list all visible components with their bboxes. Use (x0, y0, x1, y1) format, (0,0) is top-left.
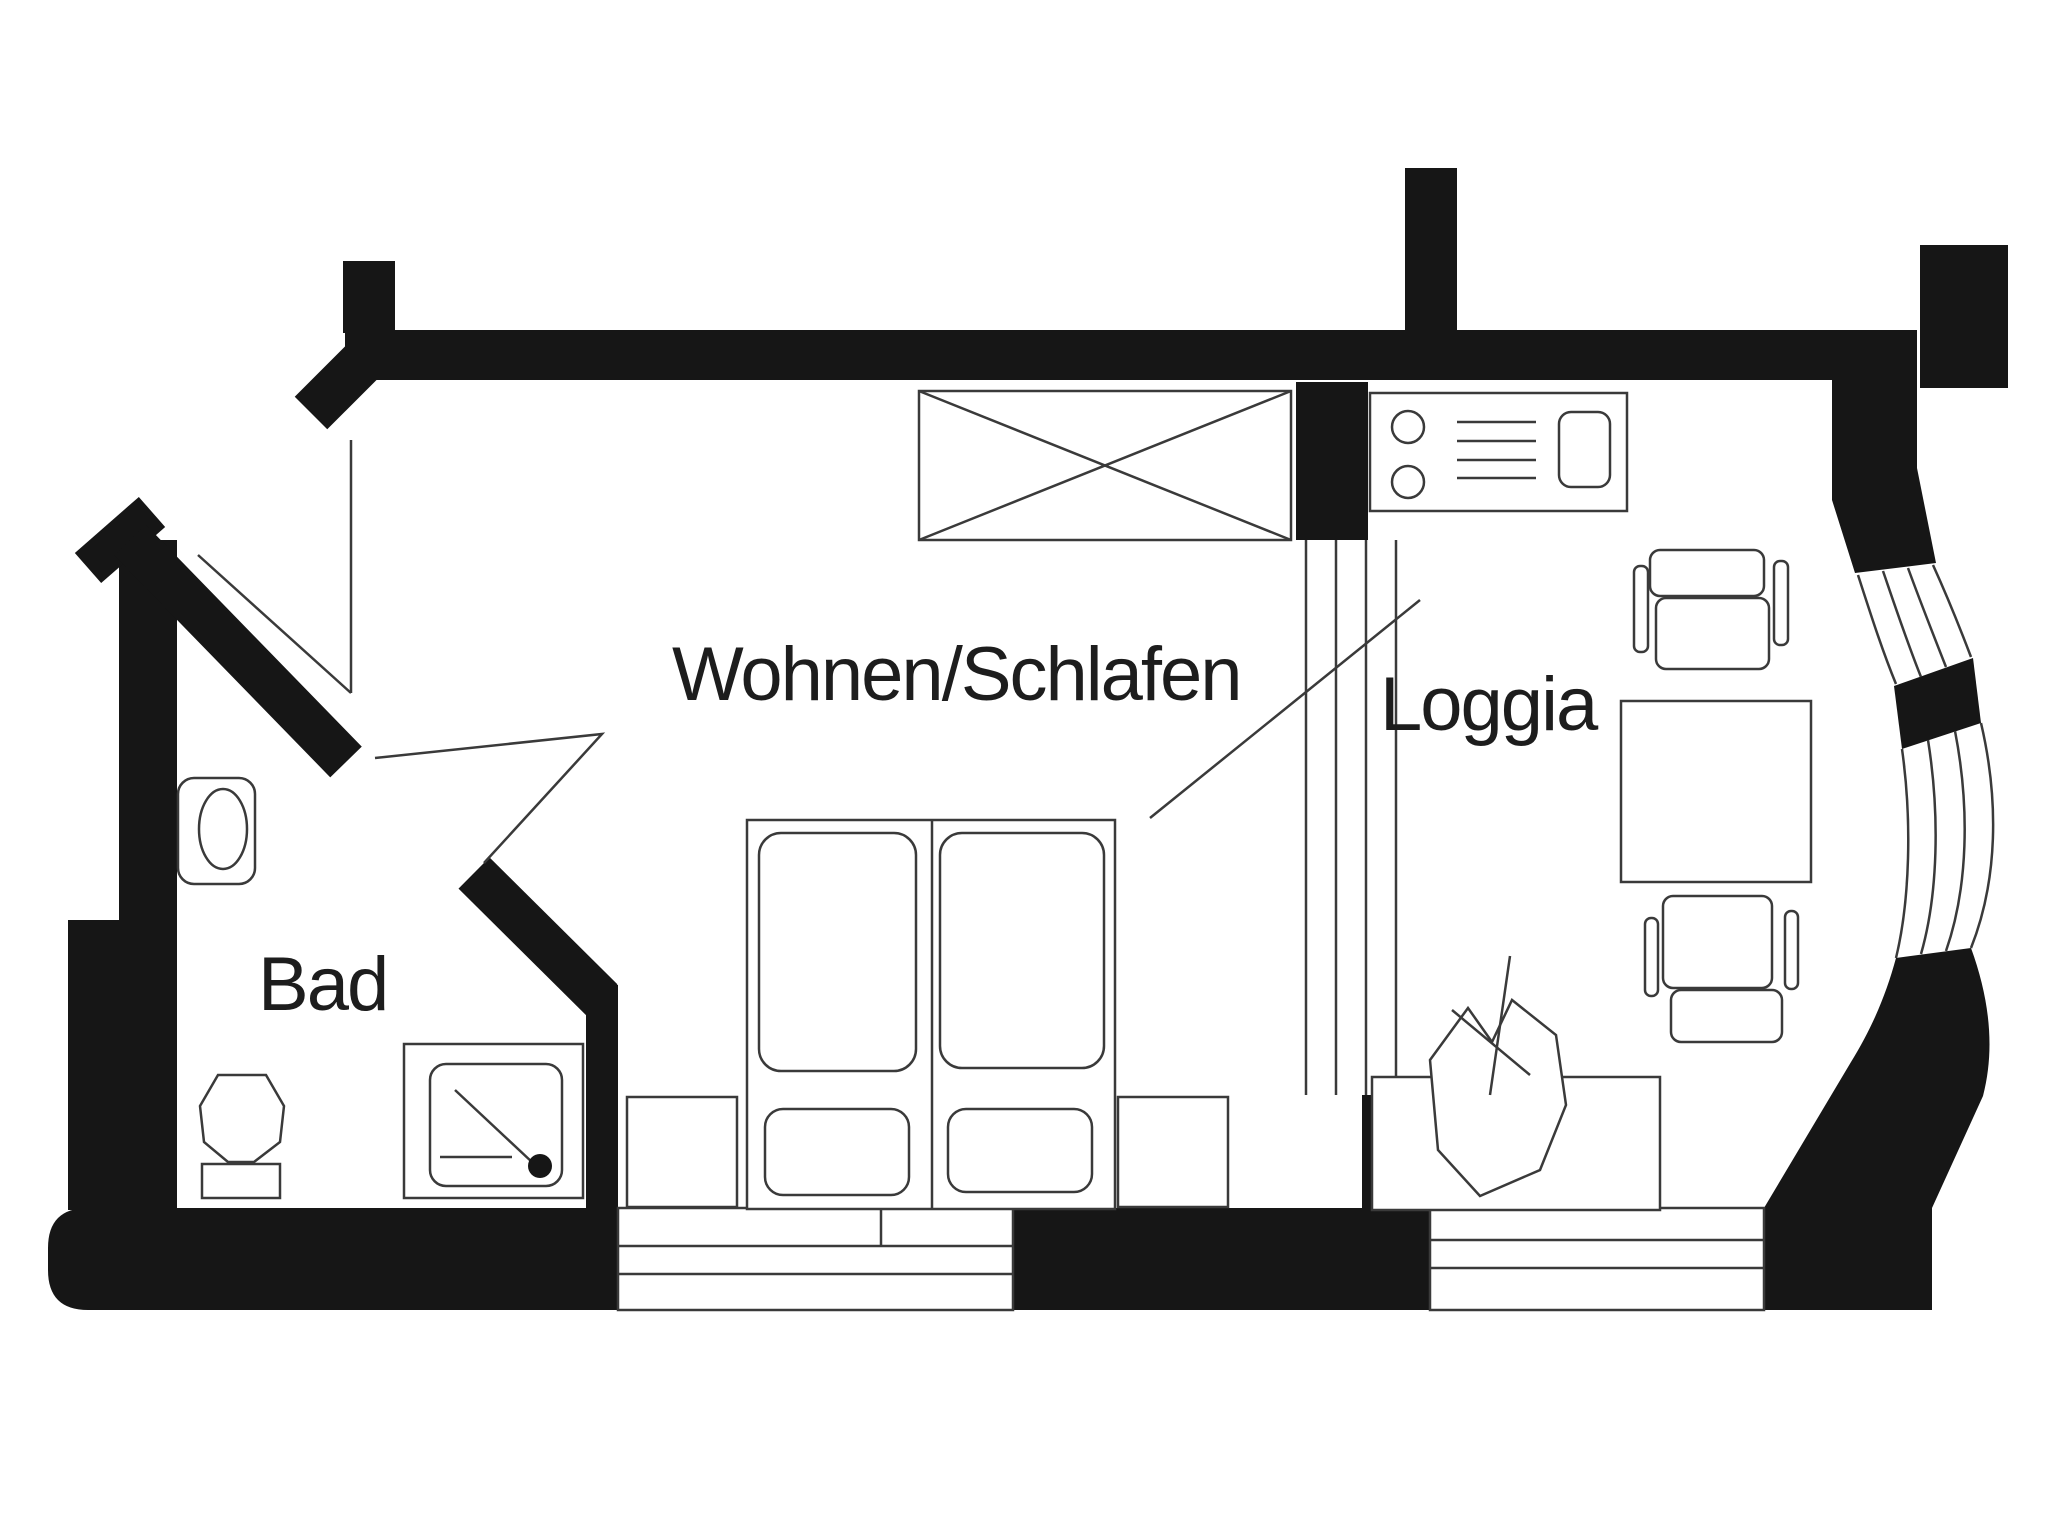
room-label-wohnen-schlafen: Wohnen/Schlafen (672, 632, 1241, 717)
bad-diagonal-wall-lower (474, 873, 602, 1000)
toilet-icon (200, 1075, 284, 1198)
shower-drain-icon (528, 1154, 552, 1178)
top-wall-stub-middle (1405, 168, 1457, 332)
partition-glazing-icon (1306, 540, 1396, 1095)
top-wall-stub-left (343, 261, 395, 333)
bottom-wall-left (48, 1208, 618, 1310)
curved-window-lower-icon (1896, 723, 1993, 958)
nightstand-right-icon (1118, 1097, 1228, 1207)
bad-door-swing-icon (375, 734, 602, 863)
window-loggia-icon (1430, 1208, 1764, 1310)
nightstand-left-icon (627, 1097, 737, 1207)
table-icon (1621, 701, 1811, 882)
furniture-loggia (1372, 550, 1811, 1210)
room-label-loggia: Loggia (1380, 662, 1599, 747)
right-wall-top-segment (1832, 380, 1936, 573)
top-wall-mitre (311, 349, 375, 413)
corner-block-bottom-right (1764, 1208, 1932, 1310)
wardrobe-icon (919, 391, 1291, 540)
kitchenette-icon (1370, 393, 1627, 511)
double-bed-icon (747, 820, 1115, 1209)
partition-column-top (1296, 382, 1368, 540)
left-wall-lower (68, 920, 177, 1210)
window-wohnen-icon (618, 1208, 1013, 1310)
kitchen-sink-icon (1559, 412, 1610, 487)
floor-plan-drawing: Wohnen/Schlafen Loggia Bad (0, 0, 2048, 1538)
furniture-wohnen-schlafen (627, 391, 1291, 1209)
chair-top-icon (1634, 550, 1788, 669)
shower-icon (404, 1044, 583, 1198)
bath-sink-icon (178, 778, 255, 884)
bad-window-pier (586, 985, 618, 1208)
chair-bottom-icon (1645, 896, 1798, 1042)
floor-plan-page: Wohnen/Schlafen Loggia Bad (0, 0, 2048, 1538)
bottom-wall-middle (1013, 1208, 1430, 1310)
right-wall-middle-segment (1894, 658, 1981, 749)
room-label-bad: Bad (258, 942, 387, 1027)
corner-block-top-right (1920, 245, 2008, 388)
top-wall (345, 330, 1917, 380)
